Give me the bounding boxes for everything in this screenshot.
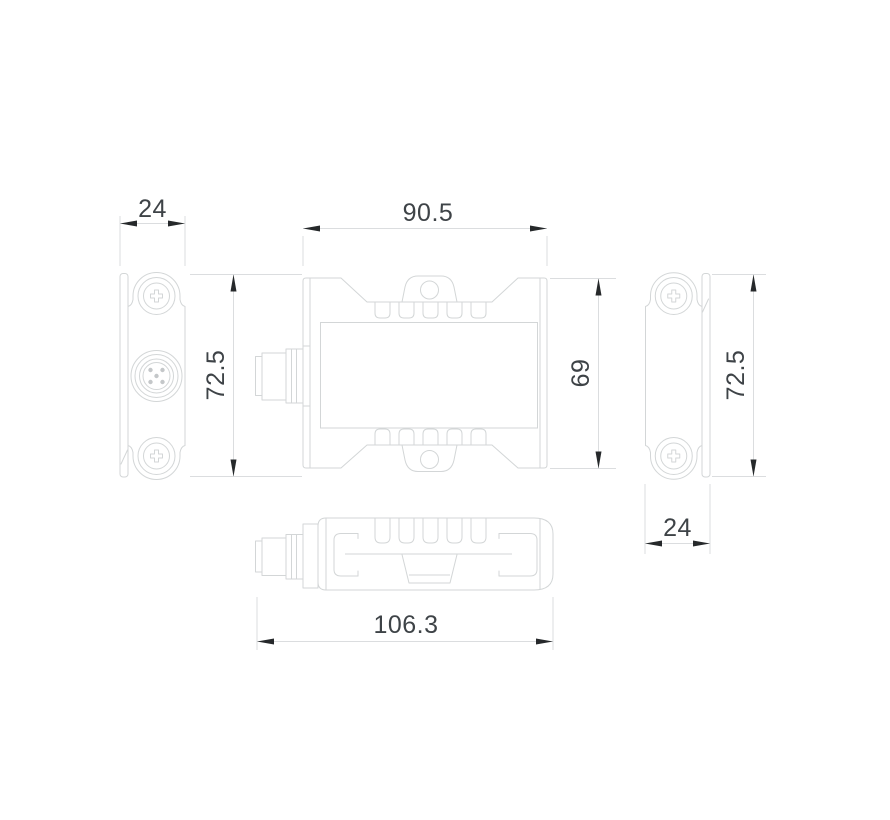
m12-connector-side xyxy=(256,524,319,588)
rail-left xyxy=(334,534,358,577)
arrowhead xyxy=(751,275,757,292)
arrowhead xyxy=(231,275,237,292)
dim-right-view-height-label: 72.5 xyxy=(722,350,750,401)
connector-cap xyxy=(256,541,263,572)
mounting-hole-bottom xyxy=(421,451,439,469)
connector-cap xyxy=(256,357,263,396)
arrowhead xyxy=(596,452,602,469)
dim-front-view-width-label: 90.5 xyxy=(403,199,454,227)
screw-boss-top xyxy=(655,278,692,315)
left-side-view xyxy=(120,273,185,480)
arrowhead xyxy=(120,221,137,227)
mounting-plate-edge xyxy=(120,274,128,478)
arrowhead xyxy=(693,541,710,547)
arrowhead xyxy=(751,460,757,477)
dimension-top-view-length: 106.3 xyxy=(257,597,553,650)
phillips-screw-icon xyxy=(668,450,680,462)
arrowhead xyxy=(168,221,185,227)
dim-left-view-height-label: 72.5 xyxy=(202,350,230,401)
plate-notch xyxy=(703,299,709,312)
dim-top-view-length-label: 106.3 xyxy=(373,611,438,639)
front-view xyxy=(256,276,548,472)
dim-left-view-width-label: 24 xyxy=(138,195,167,223)
plate-notch xyxy=(121,450,128,464)
cooling-fins-top xyxy=(375,303,486,319)
connector-pin xyxy=(148,368,152,372)
phillips-screw-icon xyxy=(151,290,163,302)
connector-nut xyxy=(286,535,303,580)
arrowhead xyxy=(530,226,547,232)
dimension-right-view-width: 24 xyxy=(645,484,710,554)
connector-nut xyxy=(286,349,303,403)
arrowhead xyxy=(303,226,320,232)
mounting-tab-plan xyxy=(402,555,457,584)
label-recess xyxy=(321,323,538,429)
top-view xyxy=(256,518,554,590)
dim-front-view-height-label: 69 xyxy=(567,359,595,388)
dim-right-view-width-label: 24 xyxy=(663,514,692,542)
arrowhead xyxy=(645,541,662,547)
arrowhead xyxy=(596,279,602,296)
phillips-screw-icon xyxy=(668,290,680,302)
arrowhead xyxy=(536,639,553,645)
dimension-left-view-height: 72.5 xyxy=(190,275,302,477)
arrowhead xyxy=(257,639,274,645)
dimension-front-view-width: 90.5 xyxy=(303,199,547,266)
connector-pin xyxy=(160,380,164,384)
dimension-left-view-width: 24 xyxy=(120,195,185,266)
screw-boss-top xyxy=(138,278,175,315)
vent-slots xyxy=(375,519,486,544)
connector-flange xyxy=(303,346,310,406)
enclosure-silhouette xyxy=(303,276,547,472)
connector-pin xyxy=(154,374,158,378)
phillips-screw-icon xyxy=(151,450,163,462)
m12-connector-face xyxy=(131,351,182,402)
arrowhead xyxy=(231,460,237,477)
screw-boss-bottom xyxy=(138,438,175,475)
mounting-hole-top xyxy=(421,281,439,299)
connector-pin xyxy=(160,368,164,372)
dimensions: 24 90.5 72.5 69 xyxy=(120,195,766,650)
enclosure-body-outline xyxy=(646,273,703,480)
cooling-fins-bottom xyxy=(375,429,486,445)
drawing-page: 24 90.5 72.5 69 xyxy=(0,0,890,820)
screw-boss-bottom xyxy=(655,438,692,475)
rail-right xyxy=(499,534,537,577)
technical-drawing-canvas: 24 90.5 72.5 69 xyxy=(0,0,890,820)
right-side-view xyxy=(646,273,711,480)
m12-connector-side xyxy=(256,346,311,406)
connector-thread xyxy=(262,538,286,576)
dimension-right-view-height: 72.5 xyxy=(712,275,766,477)
connector-thread xyxy=(262,353,286,400)
connector-flange xyxy=(303,524,318,588)
dimension-front-view-height: 69 xyxy=(550,279,616,469)
connector-pin xyxy=(148,380,152,384)
